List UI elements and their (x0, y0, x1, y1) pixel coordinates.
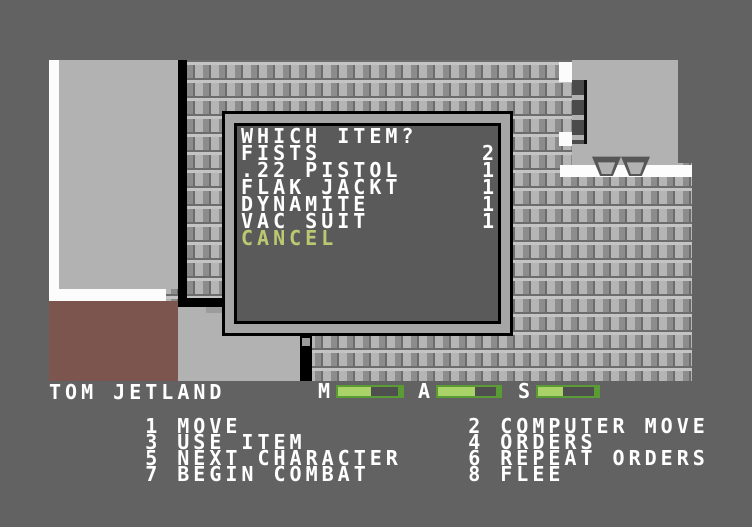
lower-door-handle (302, 338, 310, 346)
item-count: 1 (482, 213, 498, 230)
stat-bar-stamina (536, 385, 600, 398)
menu-item-begin-combat[interactable]: 7BEGIN COMBAT (49, 450, 370, 466)
character-name: TOM JETLAND (49, 384, 225, 400)
map-corner-notch (677, 60, 692, 163)
left-room-divider-wall (49, 289, 166, 301)
left-wall-white (49, 60, 59, 290)
ne-wall-piece-bottom (559, 132, 572, 146)
left-room-floor (59, 60, 178, 289)
stat-bar-movement-fill (338, 387, 371, 396)
stat-label-s: S (518, 383, 534, 399)
table-left-top (598, 162, 615, 174)
maroon-room-floor (49, 301, 178, 381)
wall-stub (178, 298, 227, 307)
dialog-cancel-button[interactable]: CANCEL (241, 230, 498, 247)
menu-item-move[interactable]: 1MOVE (49, 402, 241, 418)
stat-bar-action-fill (438, 387, 475, 396)
menu-item-flee[interactable]: 8FLEE (372, 450, 564, 466)
item-dialog: WHICH ITEM? FISTS 2 .22 PISTOL 1 FLAK JA… (222, 111, 513, 336)
c64-screen: WHICH ITEM? FISTS 2 .22 PISTOL 1 FLAK JA… (0, 0, 752, 527)
menu-item-orders[interactable]: 4ORDERS (372, 418, 597, 434)
cancel-label: CANCEL (241, 230, 337, 247)
menu-label: BEGIN COMBAT (177, 462, 370, 486)
stat-label-a: A (418, 383, 434, 399)
vertical-wall (178, 60, 187, 307)
stat-bar-stamina-fill (538, 387, 563, 396)
table-right-top (627, 162, 644, 174)
menu-label: FLEE (500, 462, 564, 486)
menu-item-next-character[interactable]: 5NEXT CHARACTER (49, 434, 402, 450)
item-dialog-body: WHICH ITEM? FISTS 2 .22 PISTOL 1 FLAK JA… (234, 123, 501, 324)
door-handle (206, 307, 222, 313)
menu-item-computer-move[interactable]: 2COMPUTER MOVE (372, 402, 709, 418)
menu-item-repeat-orders[interactable]: 6REPEAT ORDERS (372, 434, 709, 450)
airlock-door (572, 80, 587, 144)
menu-key: 8 (468, 466, 500, 482)
ne-wall-piece-top (559, 62, 572, 82)
stat-bar-action (436, 385, 502, 398)
menu-item-use-item[interactable]: 3USE ITEM (49, 418, 306, 434)
stat-bar-movement (336, 385, 404, 398)
menu-key: 7 (145, 466, 177, 482)
stat-label-m: M (318, 383, 334, 399)
